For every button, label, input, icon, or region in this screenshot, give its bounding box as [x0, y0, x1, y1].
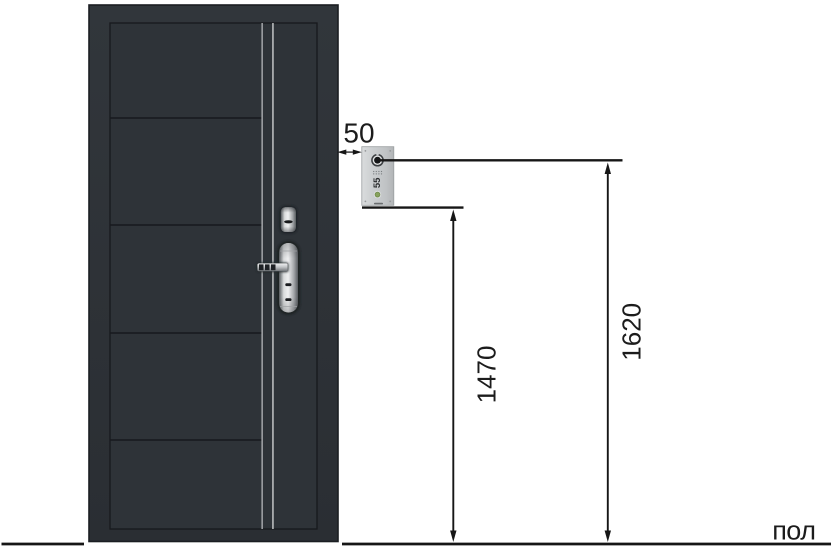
svg-text:50: 50: [343, 118, 374, 149]
svg-text:1620: 1620: [616, 303, 646, 361]
svg-text:1470: 1470: [472, 346, 502, 404]
svg-text:пол: пол: [772, 516, 815, 546]
svg-text:55: 55: [372, 177, 383, 188]
